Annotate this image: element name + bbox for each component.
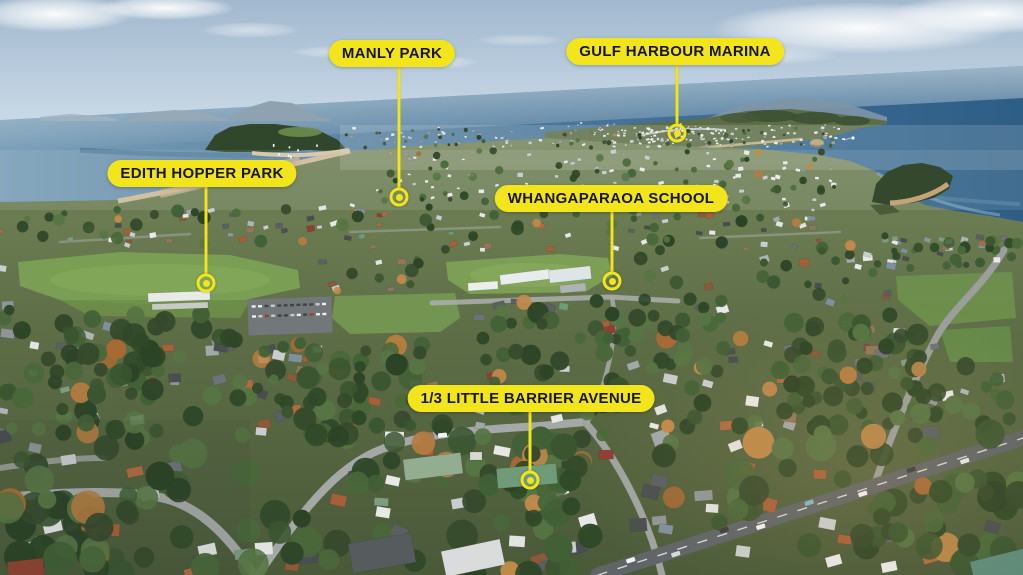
marker-stem-line (205, 186, 208, 274)
marker-pin-icon (668, 124, 687, 143)
shadow-tint (0, 420, 250, 575)
marker-pin-icon (390, 188, 409, 207)
photo-scene (0, 0, 1023, 575)
marker-label-pill: GULF HARBOUR MARINA (566, 38, 784, 65)
marker-stem-line (676, 64, 679, 124)
aerial-photo: MANLY PARKGULF HARBOUR MARINAEDITH HOPPE… (0, 0, 1023, 575)
marker-label-pill: WHANGAPARAOA SCHOOL (495, 185, 728, 212)
marker-label-pill: EDITH HOPPER PARK (107, 160, 296, 187)
marker-pin-icon (197, 274, 216, 293)
marker-stem-line (611, 211, 614, 272)
marker-pin-icon (521, 471, 540, 490)
marker-stem-line (529, 411, 532, 471)
marker-label-pill: MANLY PARK (329, 40, 455, 67)
marker-stem-line (398, 66, 401, 188)
marker-label-pill: 1/3 LITTLE BARRIER AVENUE (408, 385, 655, 412)
marker-pin-icon (603, 272, 622, 291)
